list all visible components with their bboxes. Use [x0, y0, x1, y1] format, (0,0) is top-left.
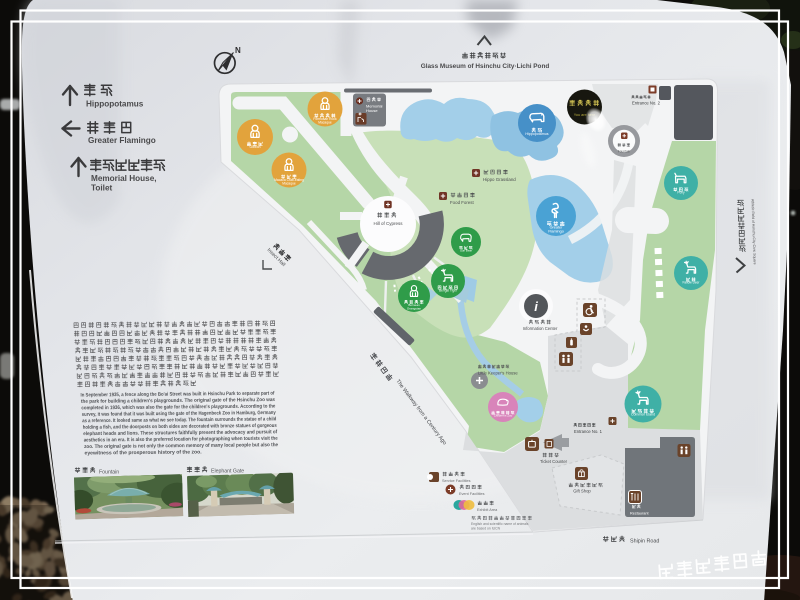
- svg-text:Glass Museum of Hsinchu City·L: Glass Museum of Hsinchu City·Lichi Pond: [421, 63, 550, 70]
- svg-text:Service Facilities: Service Facilities: [442, 479, 471, 483]
- svg-text:Gift Shop: Gift Shop: [573, 489, 591, 494]
- svg-text:Event Facilities: Event Facilities: [459, 492, 485, 496]
- svg-text:Hippopotamus: Hippopotamus: [86, 100, 144, 109]
- svg-text:English and scientific name of: English and scientific name of animals: [471, 522, 529, 526]
- svg-text:Greater Flamingo: Greater Flamingo: [88, 136, 156, 145]
- svg-text:N: N: [235, 46, 241, 55]
- svg-text:Memorial House,: Memorial House,: [91, 174, 157, 183]
- svg-text:Entrance No. 2: Entrance No. 2: [632, 101, 661, 106]
- svg-text:Hippo Grassland: Hippo Grassland: [483, 177, 516, 182]
- svg-text:eyewitness of the prosperous h: eyewitness of the prosperous history of …: [84, 449, 202, 456]
- svg-text:Information Center: Information Center: [523, 326, 558, 331]
- svg-text:Hippopotamus: Hippopotamus: [525, 132, 548, 136]
- svg-text:Toilet: Toilet: [91, 184, 112, 193]
- svg-text:Bengal Tiger: Bengal Tiger: [439, 289, 458, 293]
- svg-text:Fallow Deer: Fallow Deer: [682, 281, 700, 285]
- svg-text:Hill of Cypress: Hill of Cypress: [373, 221, 403, 226]
- svg-text:Fountain: Fountain: [618, 150, 631, 154]
- svg-text:Pony: Pony: [677, 191, 685, 195]
- svg-text:Exhibit Area: Exhibit Area: [477, 508, 498, 512]
- svg-text:House: House: [366, 108, 378, 113]
- svg-text:Food Forest: Food Forest: [450, 200, 474, 205]
- svg-text:Entrance No. 1: Entrance No. 1: [574, 429, 603, 434]
- svg-text:Restaurant: Restaurant: [630, 512, 650, 516]
- svg-text:Sun Bear: Sun Bear: [460, 248, 472, 252]
- svg-text:Macaque: Macaque: [318, 121, 332, 125]
- svg-text:Shipin Road: Shipin Road: [630, 539, 659, 545]
- svg-text:i: i: [534, 299, 538, 314]
- svg-text:Common Eland: Common Eland: [631, 413, 655, 417]
- svg-text:Macaque: Macaque: [282, 182, 296, 186]
- svg-text:are based on IUCN: are based on IUCN: [471, 527, 501, 531]
- svg-text:Children's Zoo: Children's Zoo: [494, 413, 513, 417]
- svg-text:Gibbon: Gibbon: [250, 145, 261, 149]
- svg-text:Little Keeper's House: Little Keeper's House: [478, 371, 518, 376]
- svg-text:Fountain: Fountain: [99, 470, 119, 476]
- svg-text:Flamingo: Flamingo: [548, 230, 564, 234]
- svg-text:Orangutan: Orangutan: [407, 306, 422, 310]
- svg-text:Elephant Gate: Elephant Gate: [211, 469, 244, 475]
- svg-text:Ticket Counter: Ticket Counter: [540, 459, 568, 464]
